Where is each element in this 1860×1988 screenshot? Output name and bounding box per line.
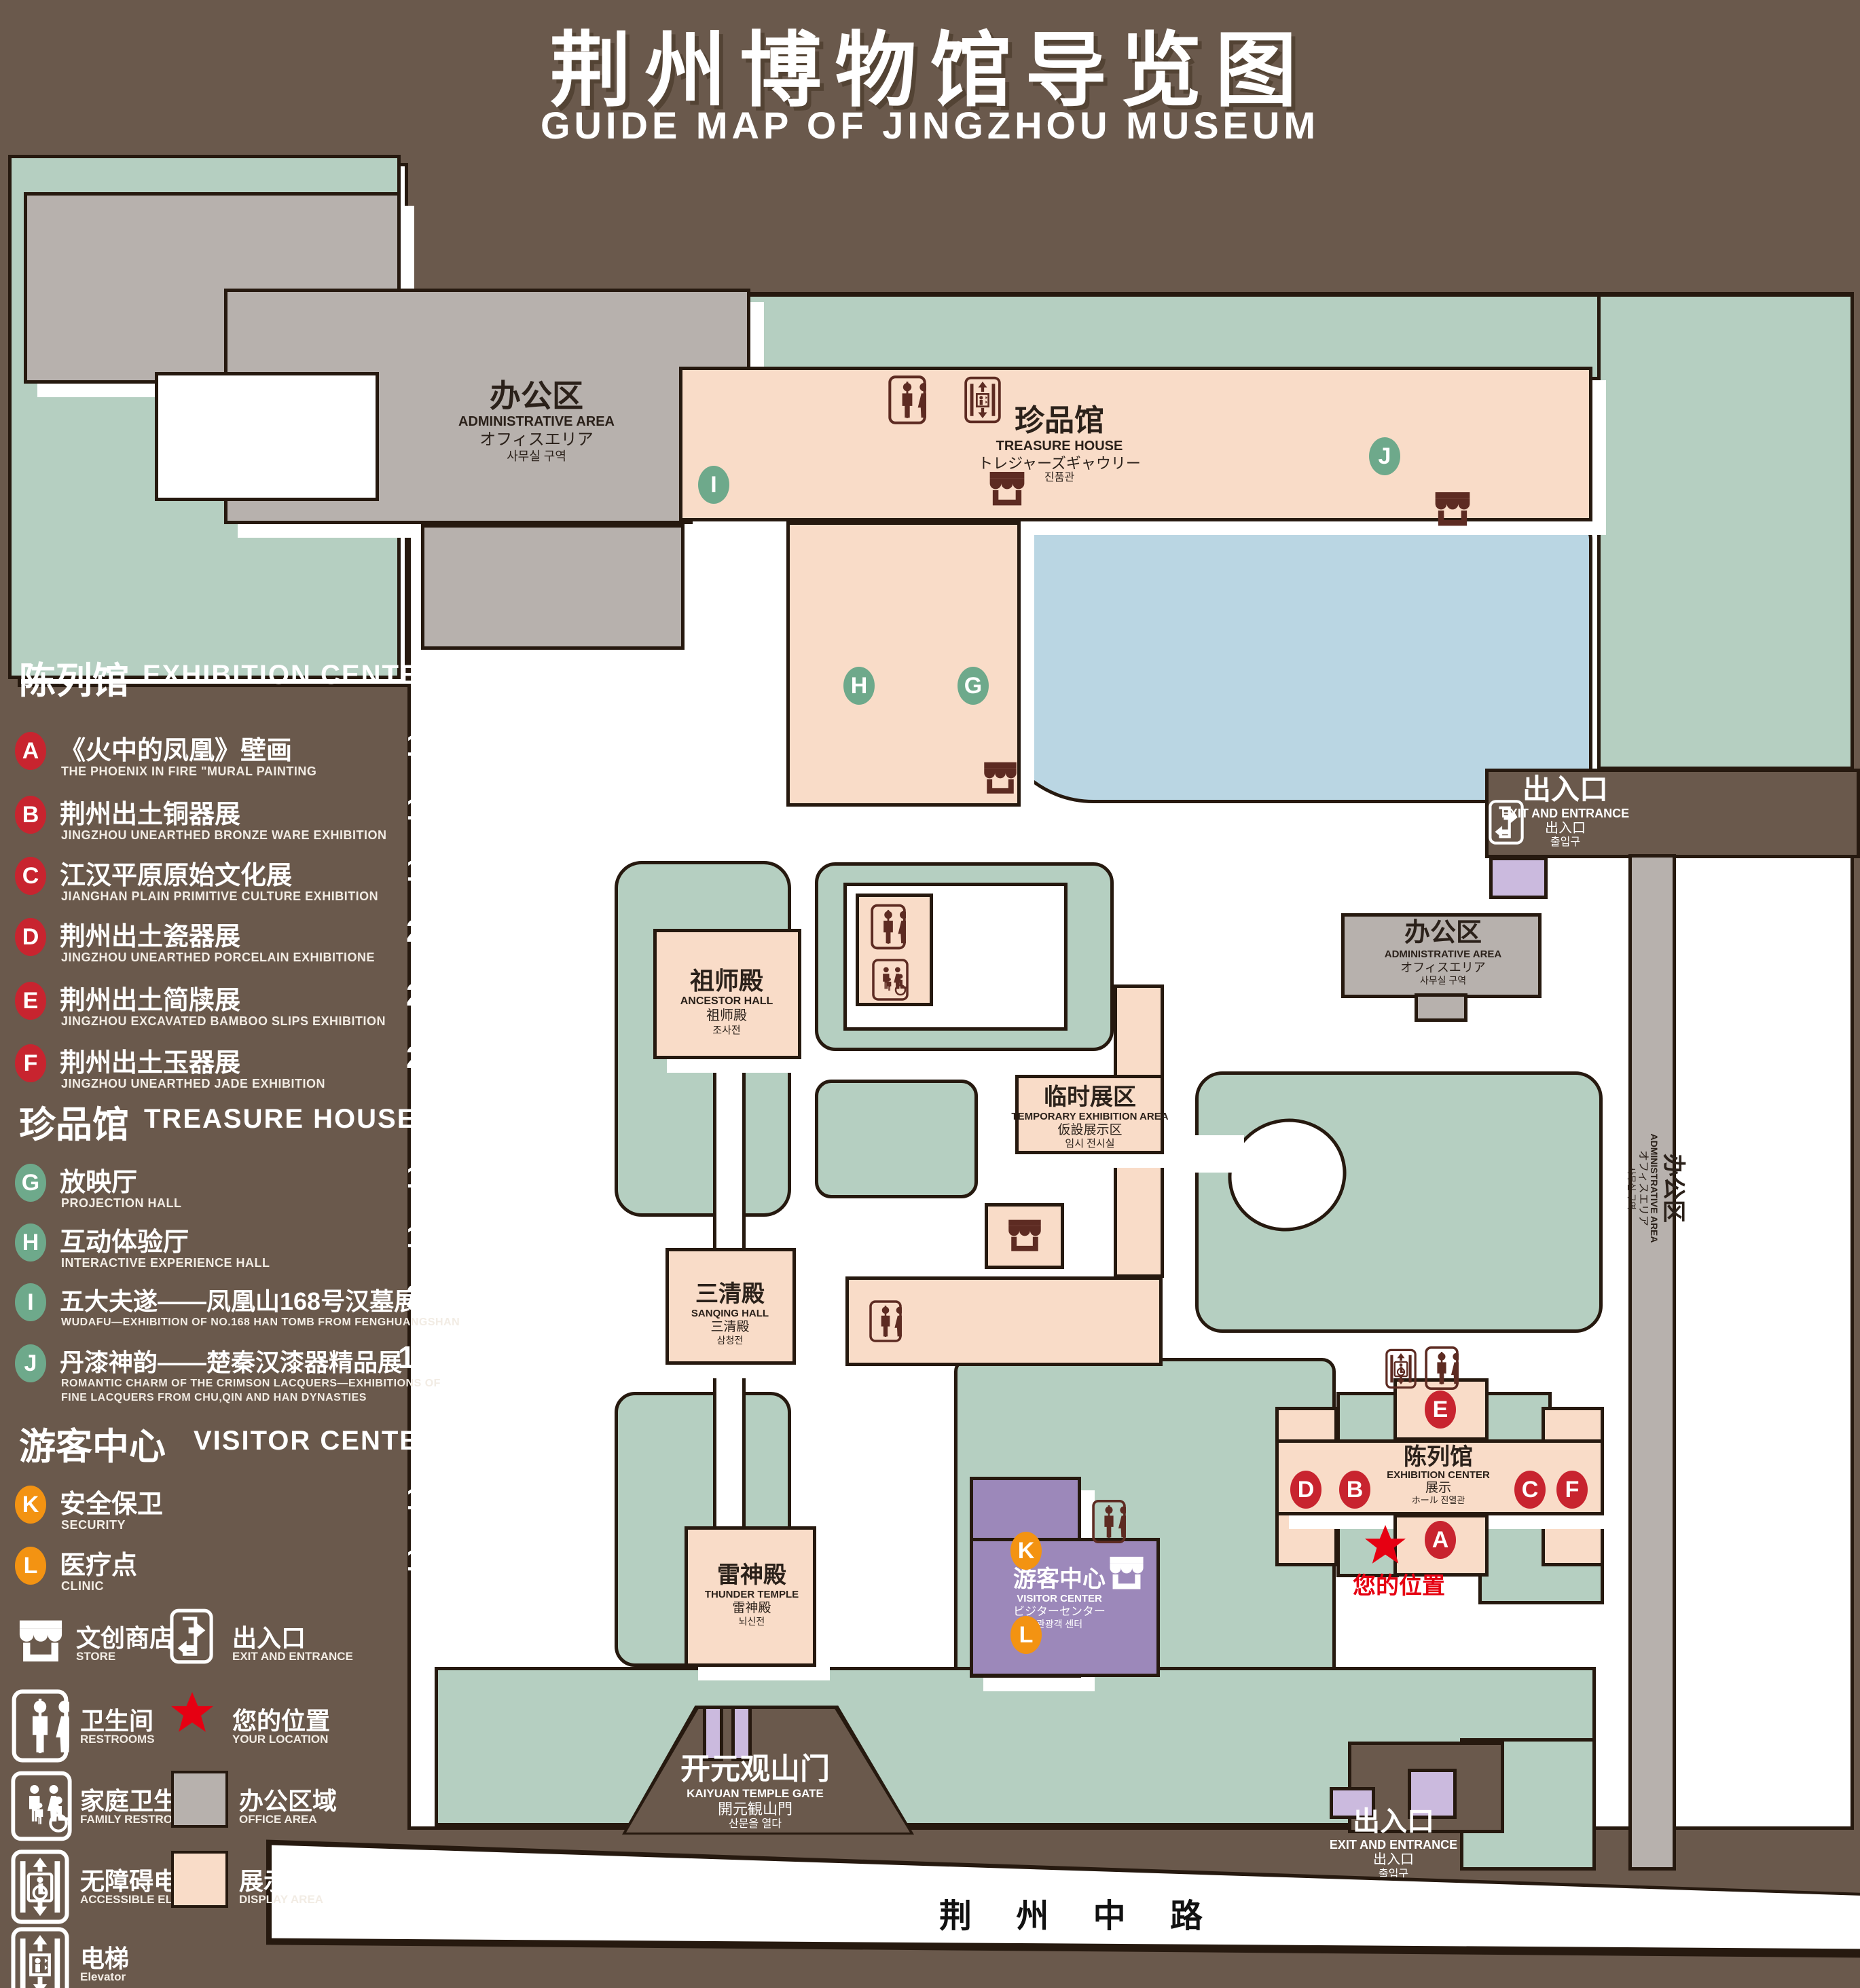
legend-symbol-elevator-en: Elevator <box>80 1970 126 1984</box>
legend-item-i-zh: 五大夫遂——凤凰山168号汉墓展 <box>60 1282 418 1317</box>
legend-item-h-floor: 1F <box>406 1218 443 1255</box>
legend-item-b-en: JINGZHOU UNEARTHED BRONZE WARE EXHIBITIO… <box>61 828 387 843</box>
legend-item-d-floor: 2F <box>406 913 443 949</box>
legend-symbol-restrooms-en: RESTROOMS <box>80 1733 155 1746</box>
map-badge-a: A <box>1425 1521 1456 1559</box>
store-icon <box>986 467 1028 509</box>
map-badge-c: C <box>1514 1471 1546 1509</box>
lawn-northeast-strip <box>1597 293 1854 770</box>
exit-ne-icon <box>1489 798 1524 846</box>
map-badge-i: I <box>698 466 729 504</box>
legend-item-e-floor: 2F <box>406 976 443 1013</box>
display-area-swatch <box>171 1851 228 1908</box>
legend-badge-h: H <box>15 1223 46 1262</box>
legend-item-f-zh: 荆州出土玉器展 <box>60 1042 240 1079</box>
exit-icon <box>170 1608 213 1665</box>
admin-nw-courtyard <box>155 372 379 501</box>
family-restroom-icon <box>11 1769 72 1843</box>
restroom-icon <box>1425 1346 1459 1391</box>
legend-item-g-zh: 放映厅 <box>60 1161 137 1198</box>
legend-item-d-zh: 荆州出土瓷器展 <box>60 915 240 953</box>
building-admin-ne-foot <box>1415 993 1467 1022</box>
legend-item-g-floor: 1F <box>406 1158 443 1195</box>
legend-item-g-en: PROJECTION HALL <box>61 1196 182 1211</box>
elevator-icon <box>964 375 1001 425</box>
store-icon <box>981 758 1020 797</box>
legend-symbol-location-zh: 您的位置 <box>232 1701 330 1737</box>
restroom-icon <box>1092 1499 1126 1544</box>
admin-east-label: 办公区 ADMINISTRATIVE AREA オフィスエリア 사무실 구역 <box>1618 984 1686 1392</box>
admin-nw-label: 办公区 ADMINISTRATIVE AREA オフィスエリア 사무실 구역 <box>380 378 693 464</box>
legend-symbol-office-zh: 办公区域 <box>239 1782 337 1817</box>
legend-item-i-floor: 2F <box>406 1278 443 1314</box>
your-location-star <box>170 1692 215 1734</box>
legend-section-exhibition-zh: 陈列馆 <box>19 650 129 704</box>
legend-symbol-elevator-zh: 电梯 <box>80 1939 129 1974</box>
family-restroom-icon <box>872 959 909 1001</box>
legend-item-j-zh: 丹漆神韵——楚秦汉漆器精品展 <box>60 1343 402 1378</box>
legend-symbol-store-en: STORE <box>76 1650 115 1663</box>
legend-item-a-zh: 《火中的凤凰》壁画 <box>60 729 292 767</box>
legend-symbol-exit-zh: 出入口 <box>232 1619 306 1654</box>
store-icon <box>1005 1215 1044 1255</box>
store-icon <box>1432 487 1474 530</box>
building-ne-small <box>1489 857 1548 899</box>
legend-item-c-zh: 江汉平原原始文化展 <box>60 854 292 891</box>
legend-section-treasure-zh: 珍品馆 <box>19 1094 129 1148</box>
legend-item-k-floor: 1F <box>406 1480 443 1517</box>
sanqing-label: 三清殿 SANQING HALL 三清殿 삼청전 <box>628 1281 832 1346</box>
legend-symbol-store-zh: 文创商店 <box>76 1619 174 1654</box>
gate-label: 开元观山门 KAIYUAN TEMPLE GATE 開元観山門 산문을 열다 <box>653 1752 857 1831</box>
elevator-icon <box>11 1927 69 1988</box>
page-title-en: GUIDE MAP OF JINGZHOU MUSEUM <box>0 103 1860 147</box>
legend-badge-k: K <box>15 1486 46 1524</box>
legend-item-l-en: CLINIC <box>61 1579 104 1594</box>
legend-item-i-en: WUDAFU—EXHIBITION OF NO.168 HAN TOMB FRO… <box>61 1316 469 1330</box>
legend-symbol-display-en: DISPLAY AREA <box>239 1893 323 1907</box>
legend-item-j-en: ROMANTIC CHARM OF THE CRIMSON LACQUERS—E… <box>61 1377 441 1405</box>
your-location-label: 您的位置 <box>1307 1567 1491 1600</box>
store-icon <box>14 1615 68 1666</box>
temporary-label: 临时展区 TEMPORARY EXHIBITION AREA 仮設展示区 임시 … <box>985 1084 1195 1150</box>
legend-badge-f: F <box>15 1044 46 1082</box>
map-badge-d: D <box>1290 1471 1321 1509</box>
legend-item-b-zh: 荆州出土铜器展 <box>60 793 240 830</box>
thunder-label: 雷神殿 THUNDER TEMPLE 雷神殿 뇌신전 <box>650 1562 854 1627</box>
road-name: 荆 州 中 路 <box>869 1889 1290 1936</box>
legend-badge-c: C <box>15 857 46 895</box>
legend-symbol-office-en: OFFICE AREA <box>239 1813 317 1826</box>
legend-section-visitor-zh: 游客中心 <box>19 1416 166 1470</box>
admin-ne-label: 办公区 ADMINISTRATIVE AREA オフィスエリア 사무실 구역 <box>1328 918 1558 986</box>
legend-section-visitor-en: VISITOR CENTER <box>194 1426 440 1456</box>
legend-item-e-en: JINGZHOU EXCAVATED BAMBOO SLIPS EXHIBITI… <box>61 1014 386 1029</box>
legend-symbol-location-en: YOUR LOCATION <box>232 1733 328 1746</box>
ancestor-hall-label: 祖师殿 ANCESTOR HALL 祖师殿 조사전 <box>625 967 828 1037</box>
treasure-label: 珍品馆 TREASURE HOUSE トレジャーズギャウリー 진품관 <box>903 403 1216 485</box>
map-badge-g: G <box>958 667 989 705</box>
legend-badge-d: D <box>15 918 46 956</box>
map-badge-h: H <box>843 667 875 705</box>
legend-badge-b: B <box>15 796 46 834</box>
office-area-swatch <box>171 1771 228 1828</box>
map-badge-l: L <box>1010 1616 1042 1654</box>
map-badge-b: B <box>1339 1471 1370 1509</box>
restroom-icon <box>888 375 926 425</box>
legend-badge-e: E <box>15 982 46 1020</box>
pond <box>991 521 1592 803</box>
path-sanqing-thunder <box>713 1363 746 1528</box>
legend-item-c-floor: 1F <box>406 851 443 888</box>
legend-section-exhibition-en: EXHIBITION CENTER <box>143 660 440 691</box>
map-badge-e: E <box>1425 1391 1456 1429</box>
accessible-elevator-icon <box>11 1849 69 1924</box>
legend-item-l-floor: 1F <box>406 1541 443 1578</box>
legend-item-d-en: JINGZHOU UNEARTHED PORCELAIN EXHIBITIONE <box>61 951 375 965</box>
legend-item-e-zh: 荆州出土简牍展 <box>60 979 240 1016</box>
legend-badge-a: A <box>15 732 46 770</box>
map-badge-j: J <box>1369 437 1400 475</box>
guide-map-sign: 出入口 EXIT AND ENTRANCE 出入口 출입구 办公区 ADMINI… <box>0 0 1860 1988</box>
legend-item-a-floor: 1F <box>406 726 443 763</box>
legend-item-b-floor: 1F <box>406 790 443 827</box>
map-badge-f: F <box>1556 1471 1588 1509</box>
legend-item-h-en: INTERACTIVE EXPERIENCE HALL <box>61 1256 270 1270</box>
restroom-icon <box>869 1300 902 1343</box>
exit-south-label: 出入口 EXIT AND ENTRANCE 出入口 출입구 <box>1292 1806 1495 1881</box>
legend-item-l-zh: 医疗点 <box>60 1544 137 1581</box>
legend-badge-i: I <box>15 1283 46 1321</box>
your-location-star <box>1364 1525 1407 1566</box>
store-icon <box>1106 1552 1148 1593</box>
legend-badge-l: L <box>15 1547 46 1585</box>
legend-symbol-display-zh: 展示区域 <box>239 1862 337 1897</box>
road: 荆 州 中 路 <box>272 1826 1860 1959</box>
building-admin-nw-c <box>421 524 685 650</box>
accessible-elevator-icon <box>1385 1348 1417 1390</box>
legend-symbol-exit-en: EXIT AND ENTRANCE <box>232 1650 353 1663</box>
legend-item-h-zh: 互动体验厅 <box>60 1221 189 1258</box>
garden-path-west <box>1195 1135 1244 1173</box>
legend-section-treasure-en: TREASURE HOUSE <box>144 1104 416 1135</box>
legend-symbol-restrooms-zh: 卫生间 <box>80 1701 153 1737</box>
map-badge-k: K <box>1010 1532 1042 1570</box>
legend-item-c-en: JIANGHAN PLAIN PRIMITIVE CULTURE EXHIBIT… <box>61 889 378 904</box>
path-ancestor-sanqing <box>713 1056 746 1249</box>
legend-badge-g: G <box>15 1164 46 1202</box>
legend-item-a-en: THE PHOENIX IN FIRE "MURAL PAINTING <box>61 765 316 779</box>
legend-item-f-floor: 2F <box>406 1039 443 1075</box>
legend-badge-j: J <box>15 1344 46 1382</box>
legend-item-k-en: SECURITY <box>61 1518 126 1532</box>
restroom-icon <box>11 1689 69 1763</box>
lawn-center <box>815 1080 978 1198</box>
legend-item-f-en: JINGZHOU UNEARTHED JADE EXHIBITION <box>61 1077 325 1091</box>
restroom-icon <box>871 903 906 951</box>
legend-item-j-floor: 1-2F <box>398 1339 462 1376</box>
legend-item-k-zh: 安全保卫 <box>60 1483 163 1520</box>
